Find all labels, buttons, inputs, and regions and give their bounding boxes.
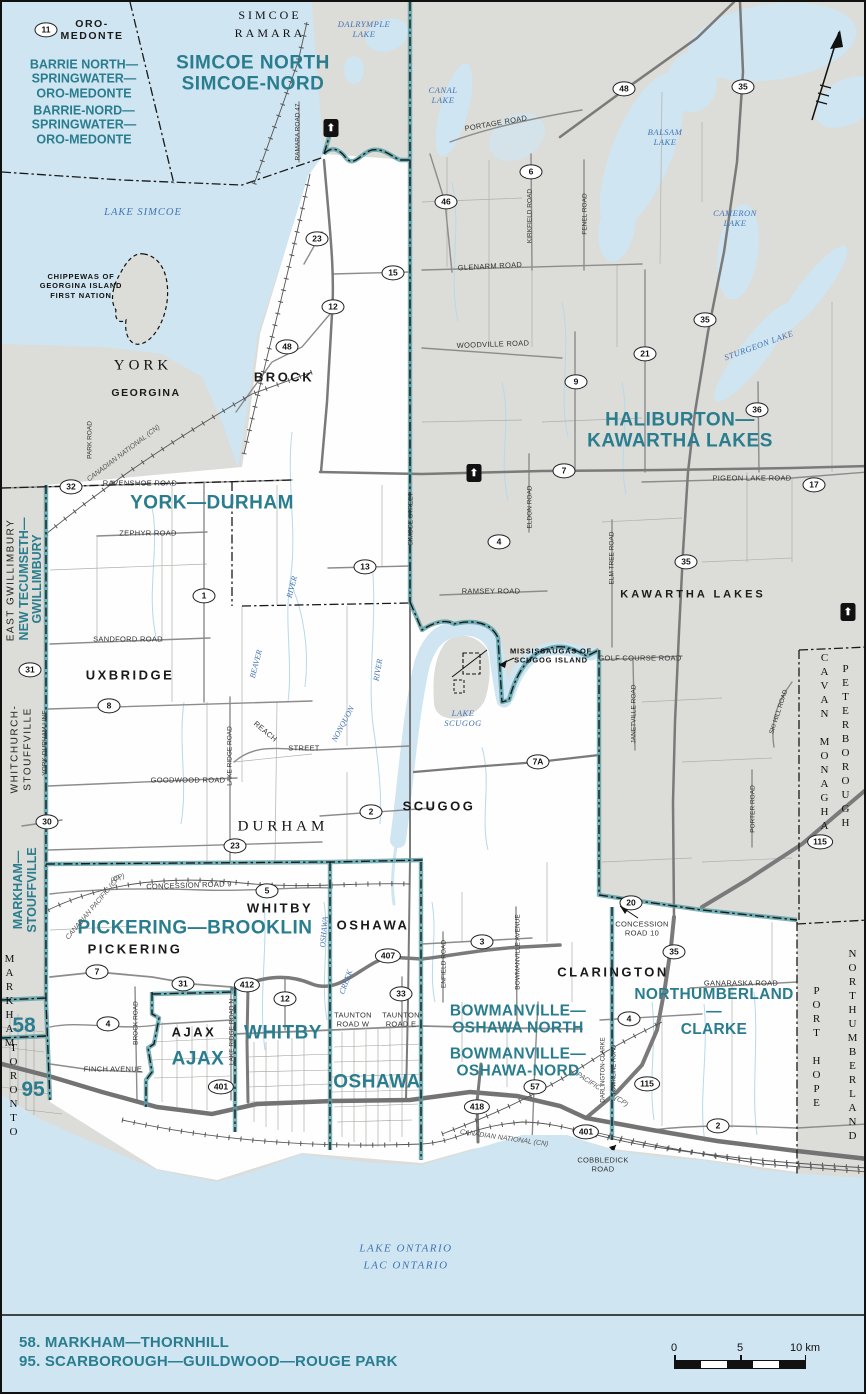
riding-label-simcoe-north: SIMCOE NORTH SIMCOE-NORD: [176, 53, 330, 94]
road-label: CONCESSION ROAD 9: [146, 880, 232, 892]
road-shield: 9: [565, 374, 588, 389]
road-shield: 11: [35, 22, 58, 37]
riding-label-barrie-north-springwater-oro-medonte: BARRIE NORTH— SPRINGWATER— ORO-MEDONTE: [30, 57, 138, 100]
road-label: GOLF COURSE ROAD: [598, 655, 681, 664]
region-label: MARKHAM: [4, 953, 15, 1051]
road-shield: 401: [573, 1124, 599, 1139]
riding-label-markham-stouffville: MARKHAM—: [11, 851, 25, 929]
road-shield: 35: [732, 79, 755, 94]
road-label: CONCESSION ROAD 10: [615, 920, 668, 937]
road-label: TAUNTON ROAD E: [382, 1011, 420, 1028]
road-label: COBBLEDICK ROAD: [577, 1156, 628, 1173]
road-shield: 35: [694, 312, 717, 327]
road-shield: 48: [276, 339, 299, 354]
road-shield: 115: [634, 1076, 660, 1091]
road-label: SANDFORD ROAD: [93, 636, 163, 645]
road-shield: 13: [354, 559, 377, 574]
road-shield: 21: [634, 346, 657, 361]
scale-bar-ticks: 0 5 10 km: [674, 1342, 806, 1356]
riding-label-barrie-nord-springwater-oro-medonte: BARRIE-NORD— SPRINGWATER— ORO-MEDONTE: [32, 103, 137, 146]
trans-canada-highway-marker-icon: ⬆: [841, 603, 856, 621]
region-label: TORONTO: [8, 1042, 19, 1140]
road-label: FINCH AVENUE: [84, 1066, 142, 1075]
road-shield: 4: [488, 534, 511, 549]
water-label: CAMERON LAKE: [713, 209, 757, 229]
railway-label: PACIFIC: [574, 1071, 601, 1093]
road-shield: 31: [172, 976, 195, 991]
legend-item: 95. SCARBOROUGH—GUILDWOOD—ROUGE PARK: [19, 1352, 398, 1371]
riding-label-northumberland-clarke: NORTHUMBERLAND— CLARKE: [634, 986, 793, 1038]
road-shield: 7: [86, 964, 109, 979]
road-label: PARK ROAD: [86, 421, 93, 459]
municipality-label: BROCK: [254, 371, 314, 386]
road-label: BOWMANVILLE AVENUE: [514, 914, 521, 989]
water-label: DALRYMPLE LAKE: [338, 20, 391, 40]
water-label: LAKE SCUGOG: [444, 709, 481, 729]
map-label-layer: ORO- MEDONTESIMCOERAMARABARRIE NORTH— SP…: [2, 2, 866, 1394]
legend-item: 58. MARKHAM—THORNHILL: [19, 1333, 398, 1352]
road-shield: 12: [322, 299, 345, 314]
first-nation-label-mississaugas: MISSISSAUGAS OF SCUGOG ISLAND: [510, 647, 592, 666]
scale-tick-10: 10 km: [790, 1342, 820, 1354]
municipality-label: OSHAWA: [337, 919, 410, 934]
road-label: ELM TREE ROAD: [608, 532, 615, 585]
riding-number-95: 95: [21, 1078, 44, 1102]
road-shield: 33: [390, 986, 413, 1001]
water-label: LAKE ONTARIO LAC ONTARIO: [359, 1241, 452, 1274]
municipality-label: UXBRIDGE: [86, 669, 175, 684]
water-label: NONQUON: [330, 705, 356, 744]
municipality-label: EAST GWILLIMBURY: [5, 519, 17, 642]
road-shield: 35: [675, 554, 698, 569]
road-label: ZEPHYR ROAD: [119, 530, 176, 539]
region-label: PORT HOPE: [811, 985, 822, 1111]
riding-label-pickering-brooklin: PICKERING—BROOKLIN: [78, 919, 313, 940]
region-label: PETERBOROUGH: [840, 663, 851, 831]
riding-label-whitby: WHITBY: [244, 1024, 322, 1045]
road-label: FENEL ROAD: [581, 193, 588, 234]
road-shield: 1: [193, 588, 216, 603]
water-label: STURGEON LAKE: [723, 329, 795, 363]
road-shield: 20: [620, 895, 643, 910]
road-shield: 31: [19, 662, 42, 677]
region-label: RAMARA: [235, 27, 306, 41]
road-label: ENFIELD ROAD: [440, 940, 447, 988]
road-label: WOODVILLE ROAD: [457, 339, 530, 350]
road-shield: 4: [618, 1011, 641, 1026]
municipality-label: ORO- MEDONTE: [61, 18, 124, 42]
road-label: TAUNTON ROAD W: [334, 1011, 372, 1028]
road-label: DARLINGTON-CLARKE: [601, 1037, 608, 1102]
road-label: KIRKFIELD ROAD: [526, 189, 533, 243]
railway-label: CANADIAN PACIFIC (CP): [65, 874, 124, 942]
road-label: JANETVILLE ROAD: [630, 685, 637, 744]
road-label: GLENARM ROAD: [458, 261, 523, 273]
road-shield: 7: [553, 463, 576, 478]
first-nation-label-chippewas: CHIPPEWAS OF GEORGINA ISLAND FIRST NATIO…: [40, 272, 123, 300]
road-shield: 12: [274, 991, 297, 1006]
legend: 58. MARKHAM—THORNHILL 95. SCARBOROUGH—GU…: [19, 1333, 398, 1371]
road-label: REACH: [252, 720, 279, 744]
scale-tick-5: 5: [737, 1342, 743, 1354]
scale-bar-segments: [674, 1360, 806, 1369]
municipality-label: WHITCHURCH-: [9, 705, 21, 794]
road-label: GOODWOOD ROAD: [151, 777, 226, 786]
road-shield: 418: [464, 1099, 490, 1114]
water-label: CANAL LAKE: [429, 86, 458, 106]
municipality-label: KAWARTHA LAKES: [620, 589, 765, 602]
road-label: TOWNLINE ROAD: [612, 1045, 619, 1096]
road-shield: 5: [256, 883, 279, 898]
road-shield: 8: [98, 698, 121, 713]
water-label: RIVER: [285, 575, 300, 599]
riding-label-bowmanville-oshawa-north: BOWMANVILLE— OSHAWA NORTH: [450, 1003, 586, 1038]
railway-label: CANADIAN NATIONAL (CN): [86, 424, 162, 484]
railway-label: (CP): [110, 873, 126, 885]
municipality-label: WHITBY: [247, 902, 313, 917]
region-label: SIMCOE: [238, 9, 301, 23]
municipality-label: STOUFFVILLE: [22, 707, 34, 791]
road-shield: 35: [663, 944, 686, 959]
road-label: PIGEON LAKE ROAD: [713, 475, 792, 484]
water-label: LAKE SIMCOE: [104, 207, 182, 219]
riding-label-oshawa: OSHAWA: [333, 1073, 420, 1094]
water-label: RIVER: [372, 658, 385, 681]
trans-canada-highway-marker-icon: ⬆: [324, 119, 339, 137]
riding-label-markham-stouffville-2: STOUFFVILLE: [25, 847, 39, 932]
riding-label-new-tecumseth-gwillimbury-2: GWILLIMBURY: [30, 534, 44, 623]
road-label: RAVENSHOE ROAD: [103, 480, 178, 489]
road-shield: 407: [375, 948, 401, 963]
electoral-district-map: ORO- MEDONTESIMCOERAMARABARRIE NORTH— SP…: [0, 0, 866, 1394]
water-label: OSHAWA: [318, 916, 330, 948]
road-shield: 6: [520, 164, 543, 179]
region-label: CAVAN MONAGHAN: [819, 652, 830, 848]
riding-label-haliburton-kawartha-lakes: HALIBURTON—KAWARTHA LAKES: [586, 410, 774, 451]
road-shield: 412: [234, 977, 260, 992]
trans-canada-highway-marker-icon: ⬆: [467, 464, 482, 482]
road-shield: 7A: [527, 754, 550, 769]
road-label: YORK-DURHAM LINE: [41, 710, 48, 775]
region-label: YORK: [114, 357, 173, 374]
road-label: ELDON ROAD: [526, 486, 533, 529]
road-label: STREET: [288, 745, 319, 754]
road-shield: 17: [803, 477, 826, 492]
municipality-label: AJAX: [172, 1026, 217, 1041]
region-label: NORTHUMBERLAND: [847, 948, 858, 1144]
road-shield: 23: [224, 838, 247, 853]
road-shield: 46: [435, 194, 458, 209]
road-shield: 23: [306, 231, 329, 246]
riding-number-58: 58: [12, 1014, 35, 1038]
road-label: SKI HILL ROAD: [768, 689, 789, 735]
railway-label: CANADIAN NATIONAL (CN): [459, 1129, 548, 1149]
road-shield: 36: [746, 402, 769, 417]
road-shield: 115: [807, 834, 833, 849]
road-label: PORTER ROAD: [749, 785, 756, 833]
road-shield: 3: [471, 934, 494, 949]
road-label: BROCK ROAD: [132, 1001, 139, 1045]
water-label: BALSAM LAKE: [648, 128, 683, 148]
region-label: DURHAM: [238, 818, 329, 835]
road-label: PORTAGE ROAD: [464, 114, 528, 133]
road-label: SIMCOE STREET: [407, 492, 414, 545]
railway-label: (CP): [613, 1095, 629, 1110]
road-shield: 30: [36, 814, 59, 829]
road-label: RAMSEY ROAD: [462, 588, 521, 597]
road-label: LAKE RIDGE ROAD: [226, 726, 233, 786]
road-label: GANARASKA ROAD: [704, 980, 778, 989]
municipality-label: GEORGINA: [111, 387, 180, 399]
scale-bar: 0 5 10 km: [674, 1342, 806, 1369]
road-shield: 4: [97, 1016, 120, 1031]
road-shield: 15: [382, 265, 405, 280]
road-shield: 401: [208, 1079, 234, 1094]
road-shield: 57: [524, 1079, 547, 1094]
riding-label-new-tecumseth-gwillimbury: NEW TECUMSETH—: [17, 518, 31, 641]
riding-label-ajax: AJAX: [172, 1050, 225, 1071]
road-shield: 2: [707, 1118, 730, 1133]
water-label: CREEK: [337, 969, 354, 996]
riding-label-bowmanville-oshawa-nord: BOWMANVILLE— OSHAWA-NORD: [450, 1046, 586, 1081]
road-shield: 48: [613, 81, 636, 96]
riding-label-york-durham: YORK—DURHAM: [130, 494, 294, 515]
water-label: BEAVER: [248, 649, 264, 679]
road-shield: 32: [60, 479, 83, 494]
road-label: RAMARA ROAD 47: [294, 103, 301, 160]
municipality-label: CLARINGTON: [557, 966, 668, 981]
municipality-label: PICKERING: [88, 943, 183, 958]
municipality-label: SCUGOG: [403, 800, 476, 815]
scale-tick-0: 0: [671, 1342, 677, 1354]
road-shield: 2: [360, 804, 383, 819]
road-label: LAKE RIDGE ROAD N: [228, 999, 235, 1065]
